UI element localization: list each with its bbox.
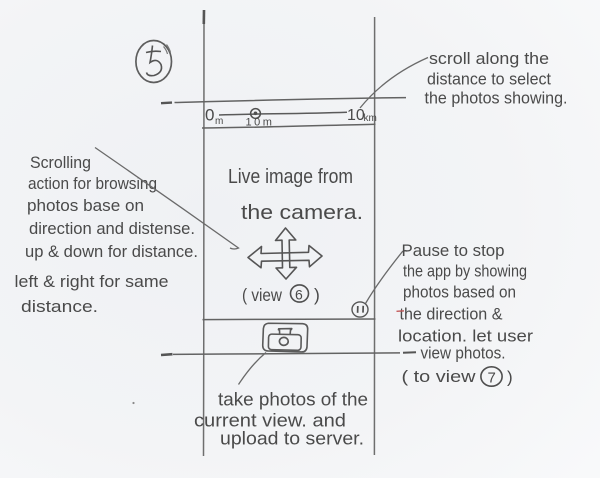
- svg-text:7: 7: [488, 370, 496, 387]
- svg-text:m: m: [215, 116, 223, 127]
- svg-text:km: km: [364, 113, 377, 124]
- svg-text:the app by showing: the app by showing: [403, 262, 527, 281]
- svg-text:10: 10: [347, 107, 365, 124]
- svg-text:distance to select: distance to select: [427, 71, 551, 89]
- svg-text:Scrolling: Scrolling: [30, 153, 91, 172]
- svg-text:Pause to stop: Pause to stop: [402, 241, 505, 260]
- svg-text:the photos showing.: the photos showing.: [425, 90, 568, 108]
- svg-text:6: 6: [295, 287, 303, 303]
- svg-text:photos base on: photos base on: [27, 196, 144, 215]
- svg-text:10m: 10m: [246, 117, 275, 129]
- svg-text:up & down for distance.: up & down for distance.: [25, 242, 198, 261]
- svg-text:( to view: ( to view: [402, 367, 477, 386]
- svg-text:photos based on: photos based on: [403, 283, 516, 302]
- svg-text:distance.: distance.: [21, 297, 98, 316]
- svg-text:( view: ( view: [242, 285, 282, 305]
- svg-text:direction and distense.: direction and distense.: [29, 219, 195, 238]
- svg-text:left & right for same: left & right for same: [15, 272, 169, 291]
- svg-text:scroll along the: scroll along the: [429, 50, 549, 68]
- svg-text:0: 0: [205, 106, 214, 125]
- svg-text:take photos of the: take photos of the: [218, 390, 368, 410]
- svg-text:): ): [314, 285, 320, 305]
- svg-text:the direction &: the direction &: [400, 305, 504, 324]
- svg-text:view photos.: view photos.: [421, 344, 506, 363]
- svg-text:Live image from: Live image from: [228, 165, 353, 188]
- svg-text:current view. and: current view. and: [194, 411, 346, 431]
- svg-text:upload to server.: upload to server.: [220, 429, 364, 449]
- svg-text:): ): [507, 368, 513, 387]
- svg-text:the camera.: the camera.: [241, 202, 363, 224]
